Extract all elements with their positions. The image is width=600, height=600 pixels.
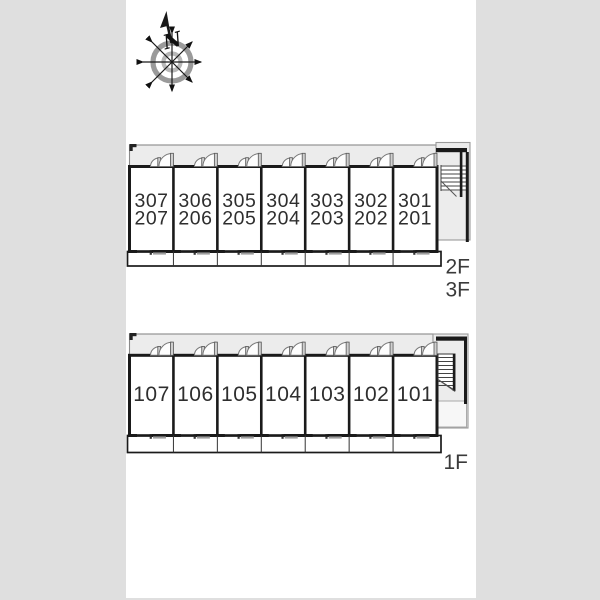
canvas: N 307 207 306 206 305 205 304 204: [0, 0, 600, 600]
window-mark: [417, 436, 430, 438]
room-label: 107: [133, 383, 170, 406]
room-label: 202: [354, 208, 388, 230]
stair-landing: [438, 401, 467, 427]
window-mark: [285, 252, 298, 254]
room-label: 103: [309, 383, 346, 406]
floor-plan-lower: 107 106 105 104 103 102 101 1F: [128, 333, 469, 474]
window-mark: [241, 252, 254, 254]
window-mark: [285, 436, 298, 438]
wall-stub: [130, 144, 133, 151]
window-mark: [373, 436, 386, 438]
window-mark: [329, 252, 342, 254]
window-mark: [197, 252, 210, 254]
wall-stub: [130, 333, 133, 340]
window-mark: [417, 252, 430, 254]
floor-label-1f: 1F: [443, 451, 468, 474]
room-label: 104: [265, 383, 302, 406]
room-label: 102: [353, 383, 390, 406]
window-mark: [197, 436, 210, 438]
window-mark: [153, 436, 166, 438]
room-label: 205: [222, 208, 256, 230]
room-label: 207: [134, 208, 168, 230]
room-label: 206: [178, 208, 212, 230]
room-label: 101: [397, 383, 434, 406]
plan-sheet: [126, 0, 476, 598]
room-label: 201: [398, 208, 432, 230]
stairwell-area: [436, 143, 470, 241]
floor-label-2f: 2F: [445, 256, 470, 279]
room-label: 105: [221, 383, 258, 406]
window-mark: [241, 436, 254, 438]
room-label: 203: [310, 208, 344, 230]
floor-label-3f: 3F: [445, 279, 470, 302]
window-mark: [329, 436, 342, 438]
window-mark: [373, 252, 386, 254]
room-label: 204: [266, 208, 300, 230]
room-label: 106: [177, 383, 214, 406]
window-mark: [153, 252, 166, 254]
